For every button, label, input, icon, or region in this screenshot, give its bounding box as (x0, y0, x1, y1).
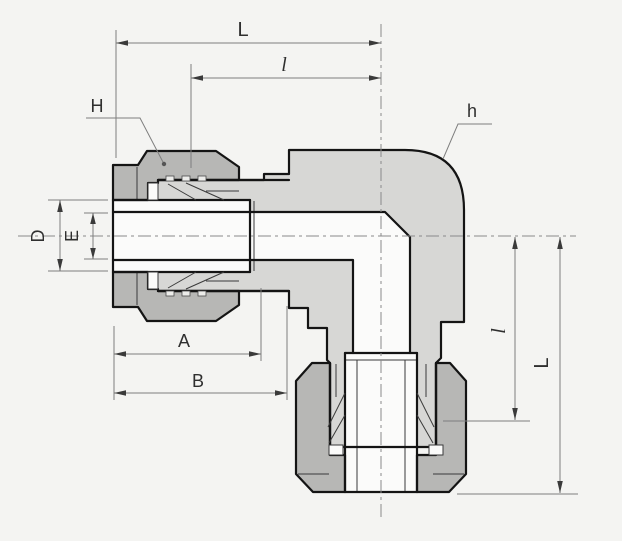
dim-L-top: L (116, 19, 381, 158)
callout-h: h (443, 101, 492, 159)
dim-label-H: H (91, 96, 104, 116)
dim-label-L-right: L (531, 357, 553, 368)
fitting-drawing-page: L l H h D E (0, 0, 622, 541)
dim-label-A: A (178, 331, 190, 351)
dim-label-l-top: l (281, 54, 287, 76)
dim-label-B: B (192, 371, 204, 391)
dim-label-l-right: l (488, 328, 510, 334)
dim-label-h: h (467, 101, 477, 121)
dim-label-E: E (62, 230, 82, 242)
dim-L-right: L (457, 237, 578, 494)
dim-label-D: D (28, 230, 48, 243)
dim-label-L-top: L (237, 19, 248, 41)
fitting-drawing-svg: L l H h D E (0, 0, 622, 541)
